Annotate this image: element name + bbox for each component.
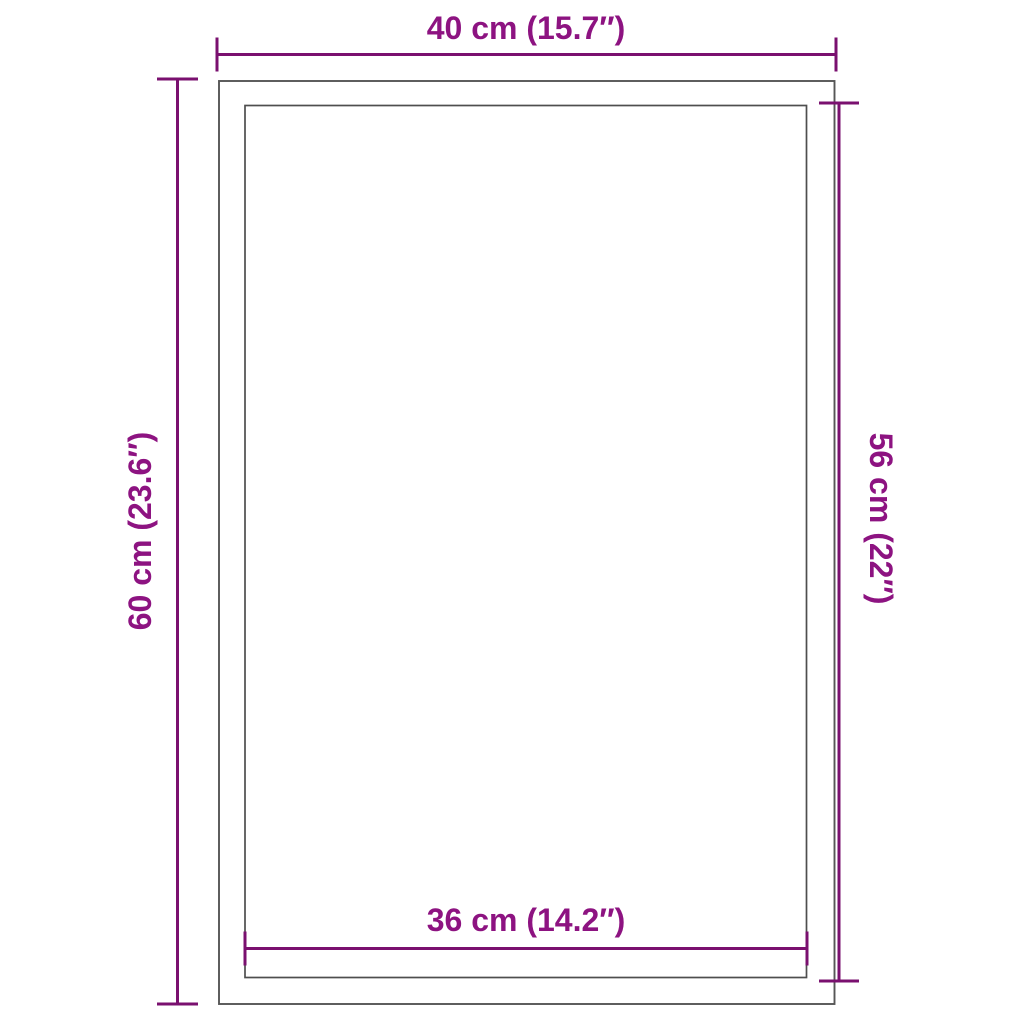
- svg-text:36 cm (14.2″): 36 cm (14.2″): [427, 902, 626, 938]
- svg-text:56 cm (22″): 56 cm (22″): [863, 433, 899, 605]
- svg-text:40 cm (15.7″): 40 cm (15.7″): [427, 10, 626, 46]
- svg-text:60 cm (23.6″): 60 cm (23.6″): [122, 432, 158, 631]
